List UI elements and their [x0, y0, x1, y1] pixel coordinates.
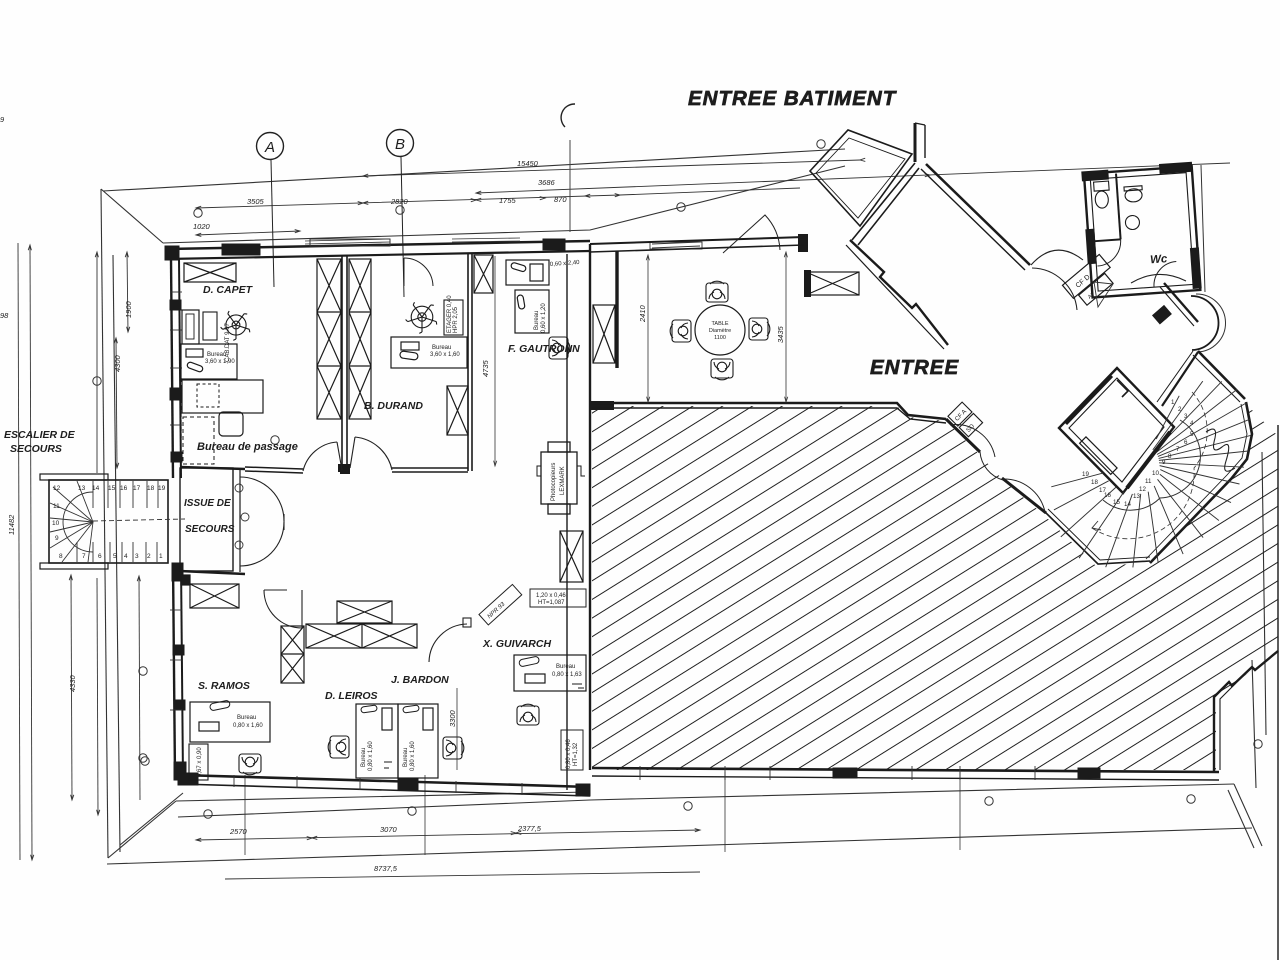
- svg-text:4: 4: [1190, 420, 1194, 427]
- svg-text:HPR 2,05: HPR 2,05: [453, 306, 459, 333]
- svg-text:0,80 x 1,60: 0,80 x 1,60: [233, 723, 263, 729]
- svg-text:ENTREE BATIMENT: ENTREE BATIMENT: [688, 87, 897, 110]
- svg-text:0,60 x 2,40: 0,60 x 2,40: [550, 260, 581, 268]
- svg-text:2: 2: [147, 553, 151, 560]
- svg-text:S. RAMOS: S. RAMOS: [198, 680, 250, 692]
- svg-text:8: 8: [59, 553, 63, 560]
- svg-text:CAB.DAT 9.07: CAB.DAT 9.07: [225, 323, 231, 362]
- svg-text:3686: 3686: [538, 178, 556, 187]
- svg-text:0,80 x 1,63: 0,80 x 1,63: [552, 672, 582, 678]
- svg-text:5: 5: [1190, 431, 1194, 438]
- svg-text:18: 18: [1091, 479, 1098, 486]
- svg-text:4: 4: [124, 553, 128, 560]
- svg-text:1755: 1755: [499, 196, 517, 205]
- svg-text:870: 870: [554, 195, 567, 204]
- svg-text:3070: 3070: [380, 825, 398, 834]
- svg-text:9: 9: [0, 115, 5, 124]
- svg-text:19: 19: [158, 485, 166, 492]
- svg-text:3: 3: [1184, 413, 1188, 420]
- svg-text:SECOURS: SECOURS: [10, 443, 62, 455]
- svg-text:J. BARDON: J. BARDON: [391, 674, 449, 686]
- svg-text:2820: 2820: [390, 197, 409, 206]
- svg-text:Bureau: Bureau: [237, 715, 256, 721]
- svg-text:TABLE: TABLE: [711, 321, 728, 327]
- svg-text:SO: SO: [966, 423, 977, 434]
- svg-text:10: 10: [52, 520, 60, 527]
- svg-text:19: 19: [1082, 471, 1089, 478]
- svg-text:3: 3: [135, 553, 139, 560]
- svg-text:Diamètre: Diamètre: [709, 328, 731, 334]
- svg-text:2410: 2410: [638, 304, 647, 323]
- svg-text:0,60 x 1,20: 0,60 x 1,20: [541, 303, 547, 333]
- svg-text:1: 1: [159, 553, 163, 560]
- svg-text:D. LEIROS: D. LEIROS: [325, 690, 378, 702]
- svg-text:1: 1: [1171, 399, 1175, 406]
- svg-text:B. DURAND: B. DURAND: [364, 400, 423, 412]
- svg-text:Bureau: Bureau: [432, 345, 451, 351]
- svg-text:Bureau: Bureau: [556, 664, 575, 670]
- svg-text:12: 12: [53, 485, 61, 492]
- svg-text:11482: 11482: [7, 514, 16, 535]
- svg-text:LEXMARK: LEXMARK: [560, 466, 566, 495]
- svg-text:2: 2: [1178, 406, 1182, 413]
- svg-text:7: 7: [1176, 446, 1180, 453]
- svg-text:Photocopieurs: Photocopieurs: [551, 463, 557, 501]
- svg-text:9: 9: [1162, 459, 1166, 466]
- svg-text:15450: 15450: [517, 159, 539, 168]
- svg-text:Bureau de passage: Bureau de passage: [197, 441, 298, 453]
- svg-text:13: 13: [1133, 493, 1140, 500]
- svg-text:14: 14: [92, 485, 100, 492]
- svg-text:17: 17: [133, 485, 141, 492]
- svg-text:9: 9: [55, 535, 59, 542]
- svg-text:Bureau: Bureau: [207, 352, 226, 358]
- svg-text:16: 16: [120, 485, 128, 492]
- svg-text:3435: 3435: [776, 325, 785, 343]
- svg-text:Bureau: Bureau: [403, 748, 409, 767]
- svg-text:6: 6: [98, 553, 102, 560]
- svg-text:ISSUE DE: ISSUE DE: [184, 498, 231, 509]
- svg-text:15: 15: [1113, 499, 1120, 506]
- svg-text:Wc: Wc: [1150, 253, 1169, 266]
- svg-text:14: 14: [1124, 501, 1131, 508]
- svg-text:X. GUIVARCH: X. GUIVARCH: [482, 638, 551, 650]
- svg-text:ESCALIER DE: ESCALIER DE: [4, 429, 76, 441]
- svg-text:12: 12: [1139, 486, 1146, 493]
- svg-text:4330: 4330: [68, 674, 77, 692]
- svg-text:4300: 4300: [113, 354, 122, 372]
- svg-text:3505: 3505: [247, 197, 265, 206]
- svg-text:0,80 x 1,60: 0,80 x 1,60: [368, 741, 374, 771]
- svg-text:18: 18: [147, 485, 155, 492]
- svg-text:6: 6: [1184, 439, 1188, 446]
- svg-text:1100: 1100: [714, 335, 726, 341]
- svg-text:4735: 4735: [481, 359, 490, 377]
- svg-text:10: 10: [1152, 470, 1159, 477]
- svg-text:98: 98: [0, 311, 9, 320]
- svg-text:3300: 3300: [448, 709, 457, 727]
- svg-text:0,80 x 0,46: 0,80 x 0,46: [566, 739, 572, 769]
- svg-text:2377,5: 2377,5: [517, 824, 542, 833]
- svg-text:1900: 1900: [124, 300, 133, 318]
- svg-text:17: 17: [1099, 487, 1106, 494]
- svg-text:SECOURS: SECOURS: [185, 524, 235, 535]
- svg-text:HT=1,32: HT=1,32: [573, 742, 579, 766]
- svg-text:8737,5: 8737,5: [374, 864, 398, 873]
- svg-text:HT=1,087: HT=1,087: [538, 600, 565, 606]
- svg-text:7: 7: [82, 553, 86, 560]
- svg-text:13: 13: [78, 485, 86, 492]
- svg-text:Bureau: Bureau: [361, 748, 367, 767]
- svg-text:1020: 1020: [193, 222, 211, 231]
- svg-text:B: B: [395, 136, 405, 153]
- svg-text:5: 5: [113, 553, 117, 560]
- svg-text:11: 11: [1145, 478, 1152, 485]
- svg-text:15: 15: [108, 485, 116, 492]
- svg-text:D. CAPET: D. CAPET: [203, 284, 254, 296]
- svg-text:Bureau: Bureau: [534, 311, 540, 330]
- svg-text:11: 11: [53, 503, 60, 510]
- svg-text:A: A: [264, 139, 275, 156]
- svg-text:1,20 x 0,46: 1,20 x 0,46: [536, 593, 566, 599]
- svg-text:0,67 x 0,90: 0,67 x 0,90: [197, 747, 203, 777]
- svg-text:8: 8: [1168, 453, 1172, 460]
- svg-text:0,80 x 1,60: 0,80 x 1,60: [410, 741, 416, 771]
- svg-text:3,60 x 1,60: 3,60 x 1,60: [430, 352, 460, 358]
- svg-text:ENTREE: ENTREE: [870, 356, 959, 379]
